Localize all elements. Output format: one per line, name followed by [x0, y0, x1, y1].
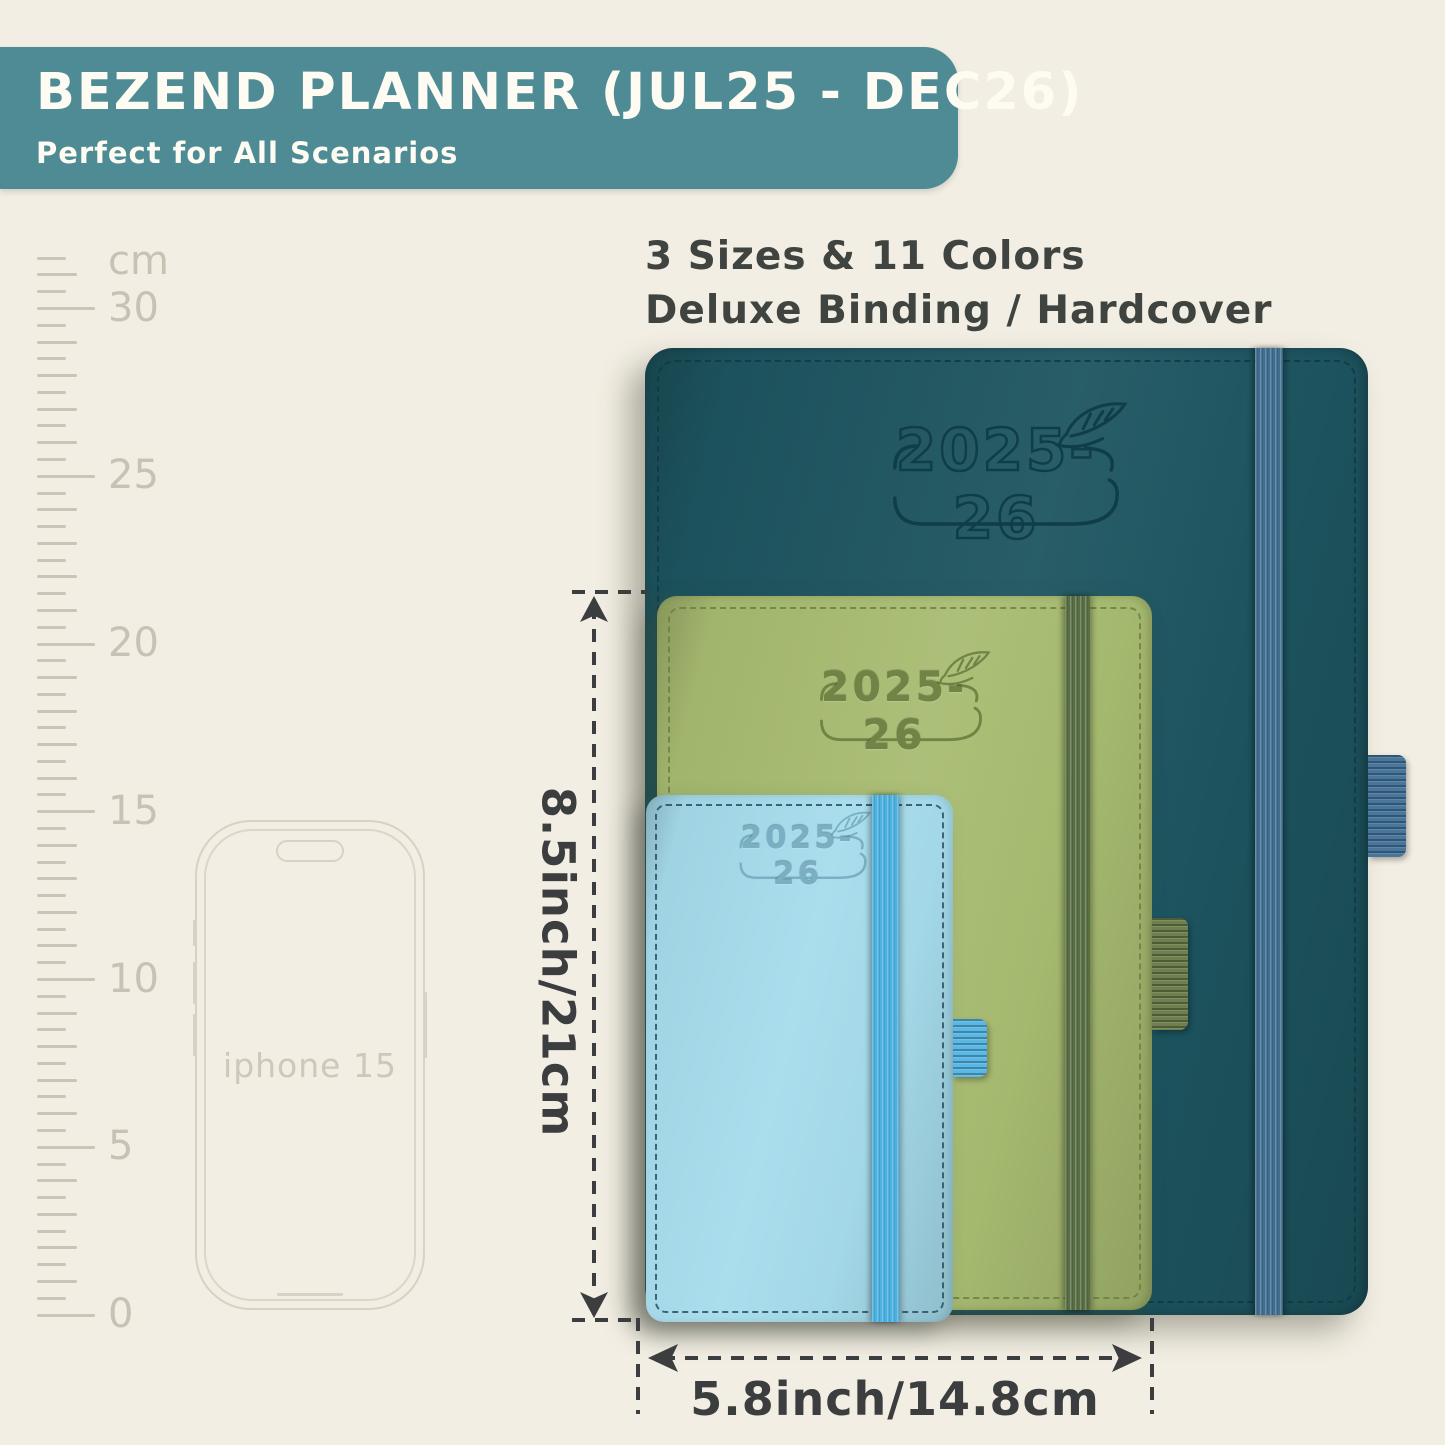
- height-dim-arrow-down: [580, 1292, 608, 1318]
- ruler-tick: [37, 1062, 66, 1065]
- ruler-tick: [37, 391, 66, 394]
- binding-text: Deluxe Binding / Hardcover: [645, 284, 1273, 338]
- ruler-tick: [37, 525, 66, 528]
- ruler-tick: [37, 408, 77, 411]
- height-dim-label: 8.5inch/21cm: [532, 787, 585, 1138]
- width-dim-right-tick: [1150, 1318, 1154, 1414]
- ruler-unit-label: cm: [108, 238, 169, 284]
- width-dim-left-tick: [636, 1318, 640, 1414]
- product-image: BEZEND PLANNER (JUL25 - DEC26) Perfect f…: [0, 0, 1445, 1445]
- ruler-tick: [37, 676, 77, 679]
- ruler-tick: [37, 1280, 77, 1283]
- ruler-tick: [37, 710, 77, 713]
- ruler-tick: [37, 1196, 66, 1199]
- ruler-tick: [37, 341, 77, 344]
- ruler-tick: [37, 1163, 66, 1166]
- ruler-tick: [37, 827, 66, 830]
- ruler-tick: [37, 273, 77, 276]
- ruler-tick: [37, 559, 66, 562]
- ruler-tick: [37, 324, 66, 327]
- ruler-tick: [37, 1297, 66, 1300]
- ruler-number: 25: [108, 452, 159, 498]
- ruler-tick: [37, 492, 66, 495]
- ruler-tick: [37, 777, 77, 780]
- ruler-tick: [37, 1263, 66, 1266]
- ruler-tick: [37, 1112, 77, 1115]
- width-dim-line: [662, 1356, 1140, 1360]
- ruler-tick: [37, 894, 66, 897]
- ruler-tick: [37, 911, 77, 914]
- year-badge: 2025-26: [813, 678, 989, 744]
- dynamic-island: [276, 840, 344, 862]
- year-badge: 2025-26: [734, 831, 872, 881]
- planner-small: 2025-26: [646, 795, 953, 1322]
- ruler-number: 15: [108, 788, 159, 834]
- phone-label: iphone 15: [197, 1046, 423, 1085]
- ruler-tick: [37, 1045, 77, 1048]
- ruler-tick: [37, 944, 77, 947]
- ruler-tick: [37, 726, 66, 729]
- ruler-tick: [37, 1012, 77, 1015]
- ruler-tick: [37, 844, 77, 847]
- ruler-tick: [37, 290, 66, 293]
- ruler-tick: [37, 760, 66, 763]
- ruler-tick: [37, 659, 66, 662]
- ruler-tick: [37, 575, 77, 578]
- feature-headline: 3 Sizes & 11 Colors Deluxe Binding / Har…: [645, 230, 1273, 338]
- ruler-tick: [37, 592, 66, 595]
- ruler-tick: [37, 257, 66, 260]
- ruler-tick: [37, 374, 77, 377]
- ruler-tick: [37, 1230, 66, 1233]
- ruler-tick: [37, 1213, 77, 1216]
- ruler-tick: [37, 877, 77, 880]
- ruler-tick: [37, 995, 66, 998]
- elastic-band: [1065, 596, 1090, 1310]
- height-dim-top-tick: [572, 590, 648, 594]
- ruler-tick: [37, 961, 66, 964]
- ruler-tick: [37, 441, 77, 444]
- ruler-tick: [37, 508, 77, 511]
- year-label: 2025-26: [883, 416, 1109, 552]
- ruler-tick: [37, 1314, 95, 1317]
- ruler-number: 30: [108, 285, 159, 331]
- cm-ruler: cm 302520151050: [0, 0, 200, 1445]
- pen-loop: [1368, 755, 1406, 857]
- phone-outline: iphone 15: [195, 820, 425, 1310]
- volume-up-button: [193, 962, 196, 1004]
- ruler-tick: [37, 693, 66, 696]
- year-label: 2025-26: [734, 820, 861, 892]
- elastic-band: [872, 795, 899, 1322]
- ruler-tick: [37, 1246, 77, 1249]
- elastic-band: [1255, 348, 1283, 1315]
- ruler-tick: [37, 626, 66, 629]
- ruler-tick: [37, 928, 66, 931]
- ruler-number: 0: [108, 1291, 133, 1337]
- ruler-tick: [37, 1095, 66, 1098]
- pen-loop: [953, 1019, 987, 1077]
- ruler-number: 20: [108, 620, 159, 666]
- ruler-tick: [37, 609, 77, 612]
- ruler-tick: [37, 357, 66, 360]
- ruler-number: 10: [108, 956, 159, 1002]
- mute-switch: [193, 920, 196, 946]
- sizes-colors-text: 3 Sizes & 11 Colors: [645, 230, 1273, 284]
- ruler-tick: [37, 643, 95, 646]
- height-dim-line: [592, 606, 596, 1294]
- volume-down-button: [193, 1014, 196, 1056]
- ruler-tick: [37, 978, 95, 981]
- ruler-tick: [37, 1179, 77, 1182]
- ruler-number: 5: [108, 1123, 133, 1169]
- ruler-tick: [37, 1146, 95, 1149]
- ruler-tick: [37, 810, 95, 813]
- ruler-tick: [37, 424, 66, 427]
- ruler-tick: [37, 307, 95, 310]
- ruler-tick: [37, 458, 66, 461]
- power-button: [424, 992, 427, 1058]
- ruler-tick: [37, 542, 77, 545]
- year-label: 2025-26: [813, 663, 975, 759]
- ruler-tick: [37, 1129, 66, 1132]
- ruler-tick: [37, 743, 77, 746]
- height-dim-bottom-tick: [572, 1318, 640, 1322]
- speaker-line: [277, 1293, 343, 1296]
- ruler-tick: [37, 793, 66, 796]
- ruler-tick: [37, 1079, 77, 1082]
- ruler-tick: [37, 1028, 66, 1031]
- width-dim-label: 5.8inch/14.8cm: [660, 1372, 1130, 1426]
- ruler-tick: [37, 861, 66, 864]
- ruler-tick: [37, 475, 95, 478]
- pen-loop: [1152, 918, 1188, 1030]
- year-badge: 2025-26: [883, 438, 1129, 530]
